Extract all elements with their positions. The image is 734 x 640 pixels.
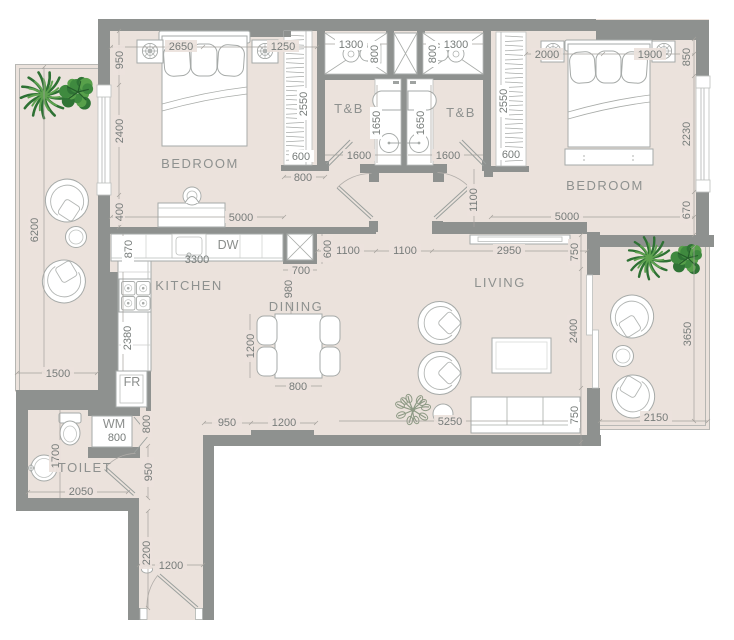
svg-text:2400: 2400 [114,119,126,143]
svg-text:2000: 2000 [535,49,559,61]
svg-text:LIVING: LIVING [474,275,526,290]
svg-text:950: 950 [114,51,126,69]
svg-text:2050: 2050 [69,486,93,498]
svg-text:1300: 1300 [339,39,363,51]
svg-text:870: 870 [123,240,135,258]
svg-text:2230: 2230 [681,122,693,146]
svg-text:1100: 1100 [336,245,360,257]
svg-text:6200: 6200 [29,218,41,242]
svg-text:5250: 5250 [438,416,462,428]
svg-text:1650: 1650 [415,111,427,135]
svg-text:BEDROOM: BEDROOM [566,178,644,193]
svg-text:2550: 2550 [298,92,310,116]
svg-text:1200: 1200 [159,560,183,572]
svg-text:1900: 1900 [638,49,662,61]
svg-text:T&B: T&B [446,105,476,120]
svg-text:1500: 1500 [46,368,70,380]
svg-text:800: 800 [427,45,439,63]
svg-text:DINING: DINING [269,299,324,314]
svg-text:3300: 3300 [185,254,209,266]
svg-text:2650: 2650 [169,41,193,53]
svg-text:2380: 2380 [122,326,134,350]
svg-text:1650: 1650 [371,111,383,135]
svg-text:850: 850 [681,48,693,66]
svg-text:800: 800 [289,381,307,393]
svg-text:5000: 5000 [229,212,253,224]
svg-text:750: 750 [569,406,581,424]
svg-text:5000: 5000 [555,211,579,223]
svg-text:950: 950 [218,417,236,429]
svg-text:400: 400 [114,203,126,221]
svg-text:950: 950 [143,463,155,481]
svg-text:3650: 3650 [682,322,694,346]
svg-text:800: 800 [369,45,381,63]
svg-text:FR: FR [124,375,141,389]
svg-text:1100: 1100 [393,245,417,257]
svg-text:700: 700 [292,265,310,277]
svg-text:980: 980 [283,280,295,298]
svg-text:1200: 1200 [272,417,296,429]
svg-text:2200: 2200 [141,541,153,565]
svg-text:670: 670 [681,201,693,219]
svg-text:800: 800 [108,432,126,444]
svg-text:1600: 1600 [347,150,371,162]
svg-text:600: 600 [502,149,520,161]
svg-text:BEDROOM: BEDROOM [161,156,239,171]
svg-text:1250: 1250 [271,41,295,53]
svg-text:KITCHEN: KITCHEN [155,278,223,293]
svg-text:1600: 1600 [436,150,460,162]
svg-text:1200: 1200 [245,334,257,358]
svg-text:2400: 2400 [568,319,580,343]
svg-text:1100: 1100 [468,188,480,212]
svg-text:600: 600 [322,240,334,258]
svg-text:800: 800 [141,415,153,433]
svg-text:800: 800 [294,172,312,184]
svg-text:TOILET: TOILET [58,460,112,475]
svg-text:DW: DW [218,238,239,252]
svg-text:750: 750 [569,243,581,261]
svg-text:2950: 2950 [497,245,521,257]
svg-text:2550: 2550 [498,89,510,113]
svg-text:WM: WM [103,417,125,431]
svg-text:2150: 2150 [644,412,668,424]
svg-text:1300: 1300 [444,39,468,51]
svg-text:T&B: T&B [334,101,364,116]
svg-text:600: 600 [292,151,310,163]
